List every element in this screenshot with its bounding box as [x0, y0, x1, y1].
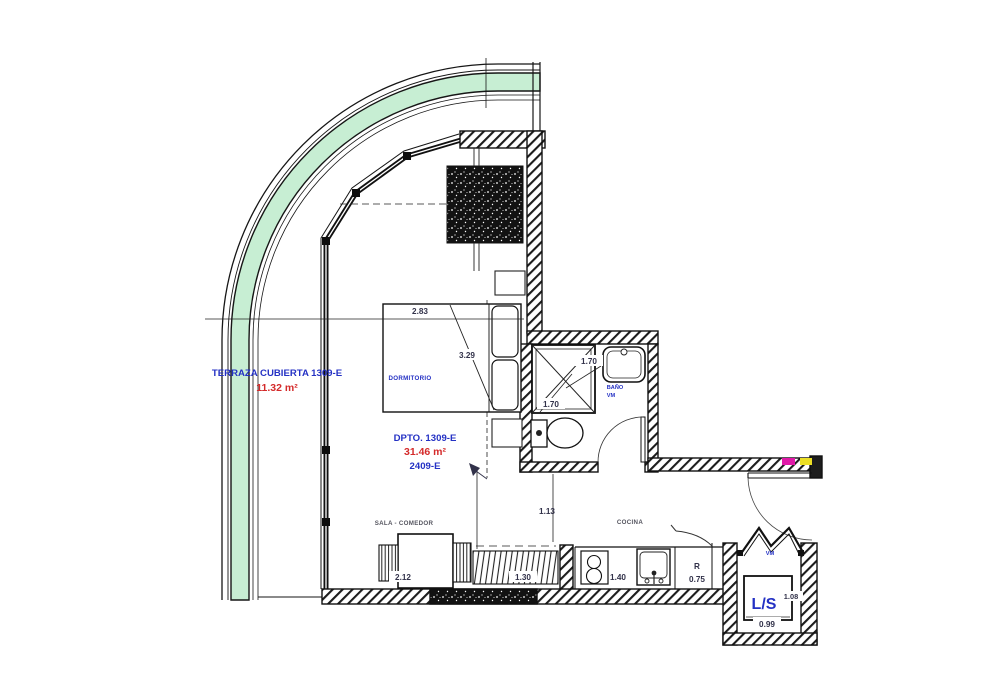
wall-ls-bottom	[723, 633, 817, 645]
wall-kitchen-left-stub	[560, 545, 573, 591]
room-bedroom: DORMITORIO	[388, 375, 431, 382]
fridge-letter: R	[694, 562, 700, 571]
wall-bath-bottom	[520, 462, 598, 472]
wall-ls-left	[723, 543, 737, 645]
room-bath: BAÑO	[607, 384, 624, 391]
entry-marker-yellow	[800, 458, 812, 465]
dim-bed-diag: 3.29	[459, 351, 475, 360]
toilet-bowl	[547, 418, 583, 448]
nightstand-lower	[492, 419, 522, 447]
toilet-flush	[536, 430, 542, 436]
dim-bath-a: 1.70	[581, 357, 597, 366]
dim-ls-h: 1.08	[784, 592, 798, 601]
nightstand-upper	[495, 271, 525, 295]
bath-sink-faucet	[621, 349, 627, 355]
wall-bath-top	[527, 331, 658, 344]
fridge-door-swing	[676, 531, 712, 546]
fridge-door-tick	[671, 525, 676, 531]
terrace-label: TERRAZA CUBIERTA 1309-E	[212, 368, 343, 379]
pillow-top	[492, 306, 518, 357]
chair-right	[453, 543, 471, 582]
bath-door-leaf	[641, 417, 645, 462]
wall-bedroom-right	[527, 131, 542, 333]
column-shaft	[447, 166, 523, 243]
dim-rail: 1.30	[515, 573, 531, 582]
room-laundry: L/S	[752, 596, 777, 613]
wall-bath-left	[520, 344, 532, 472]
floor-plan: TERRAZA CUBIERTA 1309-E 11.32 m² DPTO. 1…	[0, 0, 1000, 700]
zigzag-base-right	[798, 550, 804, 556]
dim-fridge: 0.75	[689, 575, 705, 584]
wall-corridor-right	[648, 344, 658, 462]
pillow-bottom	[492, 360, 518, 410]
dim-bath-b: 1.70	[543, 400, 559, 409]
terrace-area: 11.32 m²	[256, 382, 298, 394]
dim-hall: 1.13	[539, 507, 555, 516]
dim-arrow-hall	[469, 463, 480, 476]
dim-counter: 1.40	[610, 573, 626, 582]
bath-door-swing	[598, 417, 643, 462]
wall-bottom-column	[430, 589, 537, 604]
room-kitchen: COCINA	[617, 519, 643, 526]
dim-ls-w: 0.99	[759, 620, 775, 629]
room-laundry-vm: VM	[766, 551, 775, 557]
floor-plan-drawing: TERRAZA CUBIERTA 1309-E 11.32 m² DPTO. 1…	[0, 0, 1000, 700]
room-living: SALA - COMEDOR	[375, 520, 434, 527]
unit-area: 31.46 m²	[404, 446, 447, 458]
room-bath-vm: VM	[607, 393, 616, 399]
wall-ls-right	[801, 543, 817, 645]
dim-table: 2.12	[395, 573, 411, 582]
zigzag-base-left	[737, 550, 743, 556]
dim-arrow-tail	[476, 471, 487, 479]
unit-code: 2409-E	[410, 461, 442, 472]
entry-marker-magenta	[782, 458, 795, 465]
dim-bed-width: 2.83	[412, 307, 428, 316]
unit-label: DPTO. 1309-E	[394, 433, 457, 444]
